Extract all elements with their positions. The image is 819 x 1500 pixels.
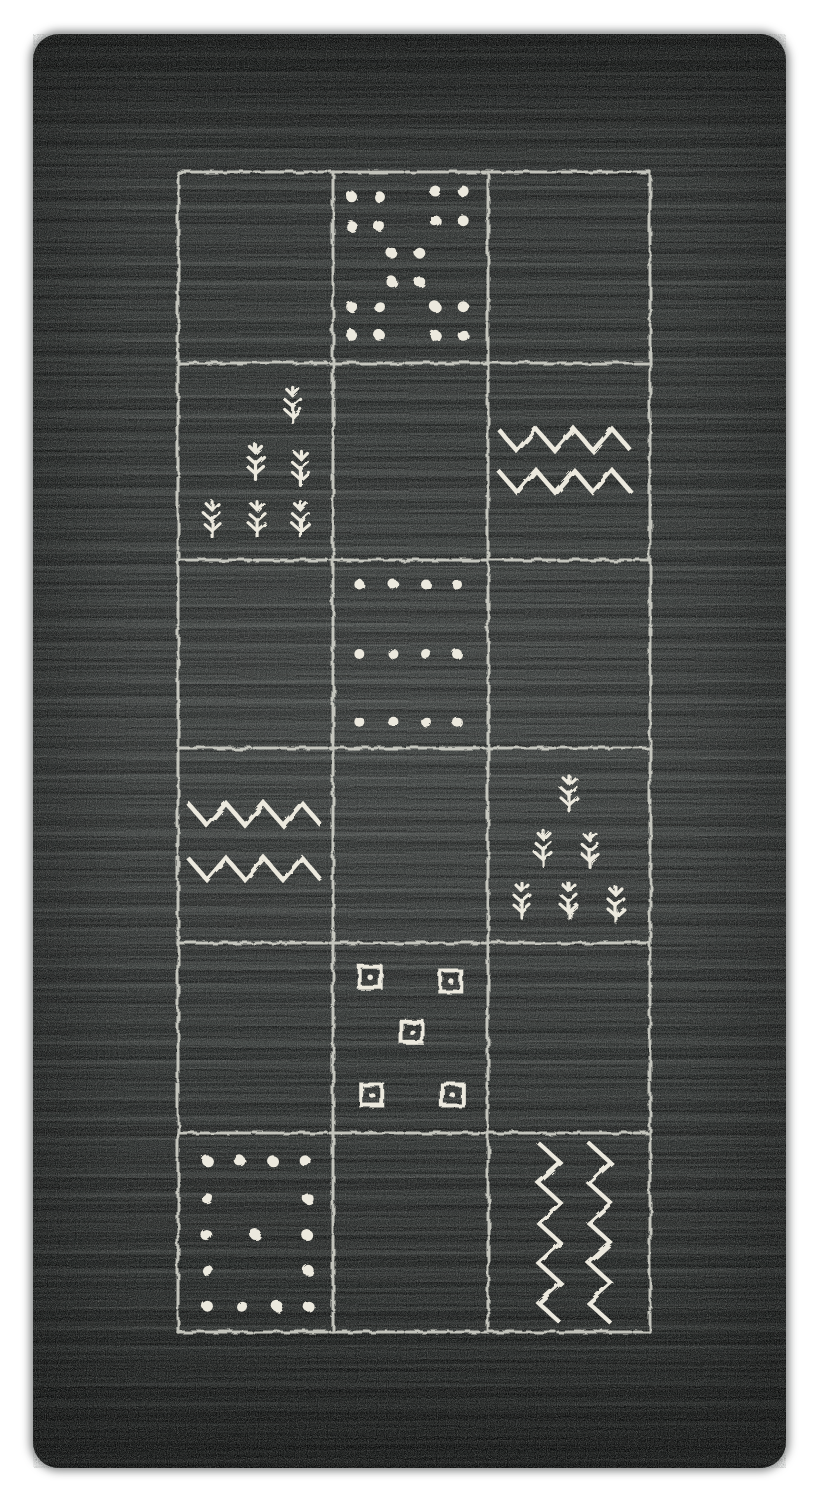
dot-motif [388,649,398,659]
dot-motif [346,221,357,232]
dot-motif [452,579,462,589]
dot-motif [430,215,441,226]
dot-motif [303,1301,314,1312]
dot-motif [430,186,441,197]
dot-motif [301,1229,312,1240]
dot-motif [346,301,357,312]
dot-motif [430,330,441,341]
dot-motif [458,301,469,312]
dot-motif [386,276,397,287]
dot-motif [374,301,385,312]
dot-motif [202,1193,213,1204]
dot-motif [250,1229,261,1240]
dot-motif [272,1301,283,1312]
rug-pattern [33,34,786,1468]
dot-motif [452,649,462,659]
dot-motif [414,276,425,287]
dot-motif [388,579,398,589]
dot-motif [303,1265,314,1276]
dot-motif [374,191,385,202]
dot-motif [346,191,357,202]
dot-motif [421,717,431,727]
dot-motif [354,649,364,659]
dot-motif [235,1155,246,1166]
rug [33,34,786,1468]
dot-motif [374,221,385,232]
dot-motif [202,1155,213,1166]
dot-motif [458,215,469,226]
dot-motif [346,330,357,341]
dot-motif [388,717,398,727]
photo-canvas [0,0,819,1500]
dot-motif [458,330,469,341]
dot-motif [421,649,431,659]
dot-motif [300,1155,311,1166]
dot-motif [354,579,364,589]
dot-motif [202,1301,213,1312]
dot-motif [202,1265,213,1276]
dot-motif [421,579,431,589]
dot-motif [267,1155,278,1166]
dot-motif [414,248,425,259]
dot-motif [386,248,397,259]
dot-motif [303,1193,314,1204]
dot-motif [458,186,469,197]
dot-motif [354,717,364,727]
dot-motif [374,330,385,341]
dot-motif [430,301,441,312]
pile-speckle-light [33,34,786,1468]
dot-motif [236,1301,247,1312]
dot-motif [200,1229,211,1240]
dot-motif [452,717,462,727]
